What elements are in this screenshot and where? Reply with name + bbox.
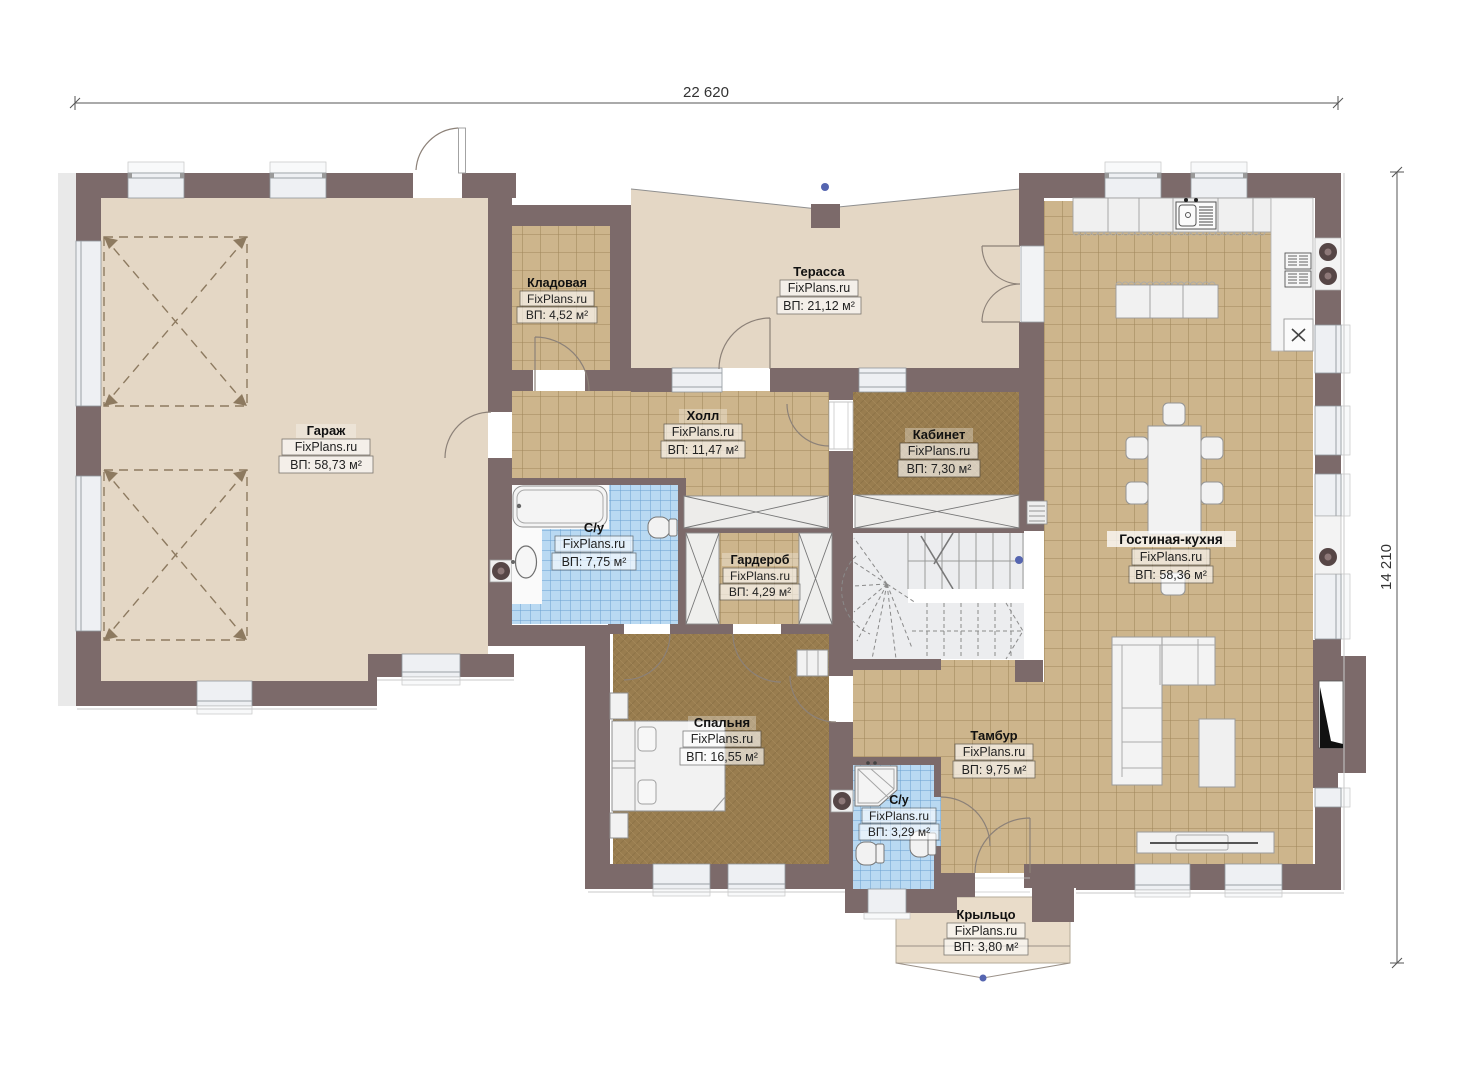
svg-text:22 620: 22 620	[683, 84, 729, 101]
svg-text:Кладовая: Кладовая	[527, 276, 587, 290]
svg-text:Крыльцо: Крыльцо	[956, 907, 1015, 922]
svg-text:Кабинет: Кабинет	[913, 427, 966, 442]
svg-text:ВП: 58,73 м²: ВП: 58,73 м²	[290, 458, 362, 472]
svg-text:ВП: 3,80 м²: ВП: 3,80 м²	[954, 940, 1019, 954]
svg-text:FixPlans.ru: FixPlans.ru	[955, 924, 1018, 938]
svg-text:ВП: 9,75 м²: ВП: 9,75 м²	[962, 763, 1027, 777]
svg-text:ВП: 16,55 м²: ВП: 16,55 м²	[686, 750, 758, 764]
svg-text:ВП: 7,30 м²: ВП: 7,30 м²	[907, 462, 972, 476]
svg-text:Терасса: Терасса	[793, 264, 845, 279]
svg-text:FixPlans.ru: FixPlans.ru	[788, 281, 851, 295]
svg-text:FixPlans.ru: FixPlans.ru	[963, 745, 1026, 759]
svg-text:FixPlans.ru: FixPlans.ru	[1140, 550, 1203, 564]
svg-text:FixPlans.ru: FixPlans.ru	[908, 444, 971, 458]
svg-text:ВП: 58,36 м²: ВП: 58,36 м²	[1135, 568, 1207, 582]
svg-text:Гараж: Гараж	[307, 423, 347, 438]
svg-text:FixPlans.ru: FixPlans.ru	[869, 809, 929, 823]
svg-text:Гостиная-кухня: Гостиная-кухня	[1119, 532, 1222, 547]
svg-text:ВП: 7,75 м²: ВП: 7,75 м²	[562, 555, 627, 569]
svg-text:FixPlans.ru: FixPlans.ru	[563, 537, 626, 551]
svg-text:FixPlans.ru: FixPlans.ru	[691, 732, 754, 746]
svg-text:ВП: 3,29 м²: ВП: 3,29 м²	[868, 825, 930, 839]
svg-text:14 210: 14 210	[1378, 544, 1395, 590]
svg-text:ВП: 4,29 м²: ВП: 4,29 м²	[729, 585, 791, 599]
svg-text:Тамбур: Тамбур	[970, 728, 1017, 743]
svg-text:С/у: С/у	[584, 520, 605, 535]
svg-text:ВП: 21,12 м²: ВП: 21,12 м²	[783, 299, 855, 313]
svg-text:ВП: 4,52 м²: ВП: 4,52 м²	[526, 308, 588, 322]
svg-text:FixPlans.ru: FixPlans.ru	[527, 292, 587, 306]
svg-text:FixPlans.ru: FixPlans.ru	[295, 440, 358, 454]
svg-text:FixPlans.ru: FixPlans.ru	[672, 425, 735, 439]
svg-text:Холл: Холл	[687, 408, 720, 423]
svg-text:ВП: 11,47 м²: ВП: 11,47 м²	[668, 443, 739, 457]
svg-text:Спальня: Спальня	[694, 715, 750, 730]
svg-text:С/у: С/у	[889, 793, 909, 807]
svg-text:FixPlans.ru: FixPlans.ru	[730, 569, 790, 583]
svg-text:Гардероб: Гардероб	[730, 553, 789, 567]
